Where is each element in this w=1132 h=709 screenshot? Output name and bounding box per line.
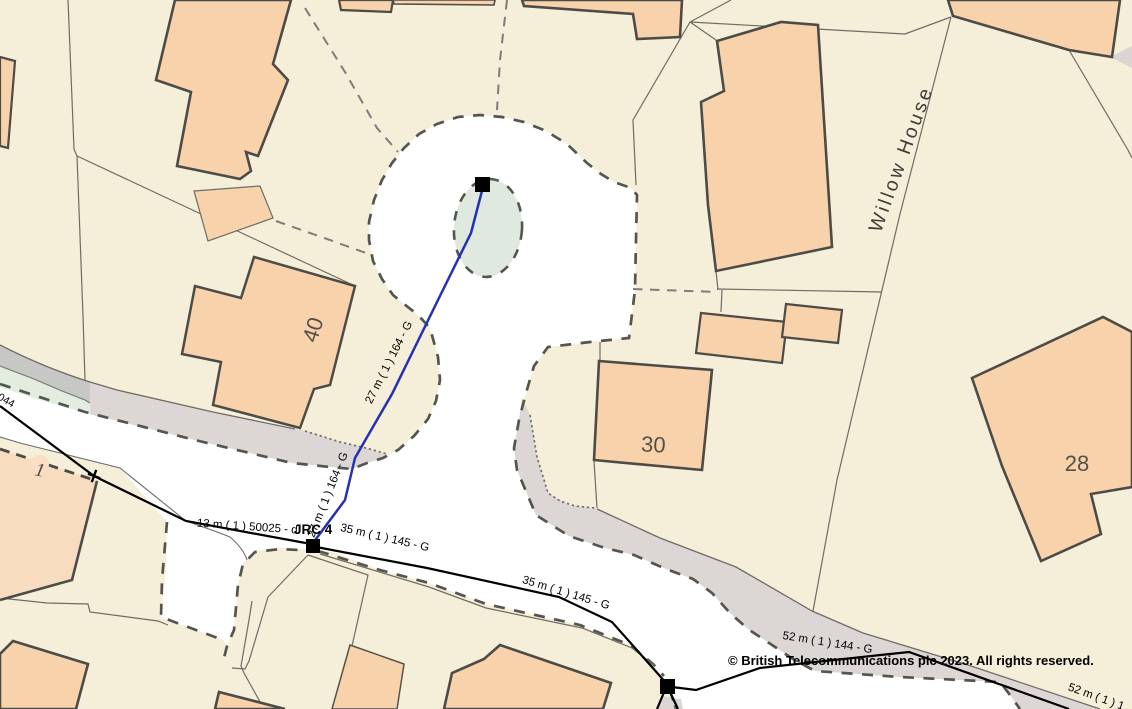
svg-text:28: 28 [1065, 451, 1089, 476]
svg-text:30: 30 [641, 431, 667, 457]
svg-text:JRC 4: JRC 4 [294, 522, 333, 537]
svg-text:© British Telecommunications p: © British Telecommunications plc 2023. A… [728, 653, 1094, 668]
